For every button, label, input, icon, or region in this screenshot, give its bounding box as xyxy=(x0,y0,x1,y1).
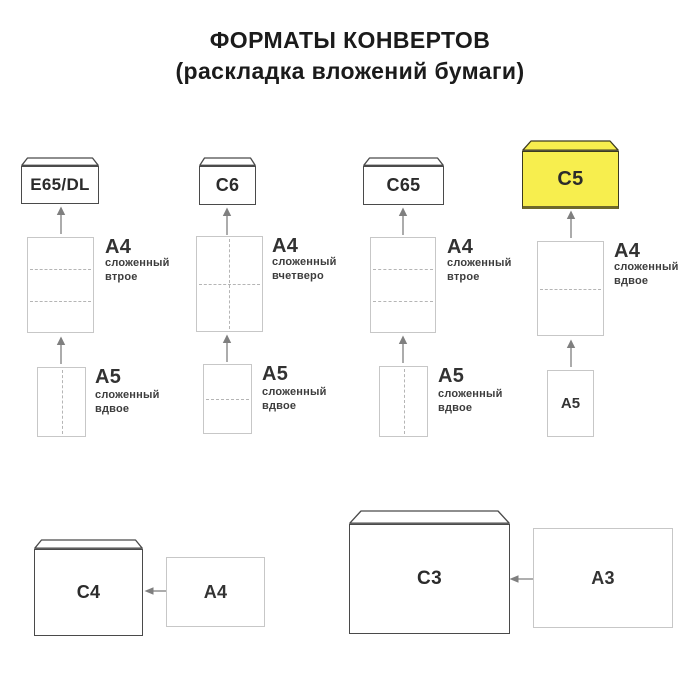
arrow-left-icon xyxy=(144,585,167,597)
paper-size-label: A5 xyxy=(561,395,580,412)
arrow-up-icon xyxy=(221,334,233,362)
envelope-label: C5 xyxy=(557,168,583,191)
fold-description: сложенный вдвое xyxy=(262,386,327,413)
envelope-c3: C3 xyxy=(349,510,510,634)
fold-line xyxy=(30,269,91,270)
fold-description: сложенный вчетверо xyxy=(272,256,337,283)
paper-size-label: A4 xyxy=(272,235,298,258)
arrow-up-icon xyxy=(397,335,409,363)
paper-a3-unfolded: A3 xyxy=(533,528,673,628)
envelope-label: E65/DL xyxy=(30,175,89,195)
paper-size-label: A4 xyxy=(447,236,473,259)
paper-a4-folded-in-four xyxy=(196,236,263,332)
envelope-body: C3 xyxy=(349,524,510,634)
paper-size-label: A4 xyxy=(105,236,131,259)
paper-a5-folded-in-two xyxy=(379,366,428,437)
envelope-body: C4 xyxy=(34,549,143,636)
envelope-flap-icon xyxy=(199,157,256,166)
envelope-label: C65 xyxy=(387,175,421,196)
envelope-flap-icon xyxy=(349,510,510,524)
arrow-left-icon xyxy=(509,573,534,585)
fold-description: сложенный вдвое xyxy=(438,388,503,415)
fold-line xyxy=(540,289,601,290)
page-title-line2: (раскладка вложений бумаги) xyxy=(0,56,700,87)
arrow-up-icon xyxy=(565,339,577,367)
envelope-label: C4 xyxy=(77,582,101,603)
envelope-label: C3 xyxy=(417,568,442,590)
envelope-formats-diagram: ФОРМАТЫ КОНВЕРТОВ (раскладка вложений бу… xyxy=(0,0,700,700)
paper-size-label: A3 xyxy=(591,568,615,589)
fold-description: сложенный вдвое xyxy=(95,389,160,416)
page-title: ФОРМАТЫ КОНВЕРТОВ (раскладка вложений бу… xyxy=(0,25,700,87)
arrow-up-icon xyxy=(55,206,67,234)
arrow-up-icon xyxy=(565,210,577,238)
envelope-flap-icon xyxy=(522,140,619,151)
page-title-line1: ФОРМАТЫ КОНВЕРТОВ xyxy=(0,25,700,56)
envelope-body: C65 xyxy=(363,166,444,205)
arrow-up-icon xyxy=(55,336,67,364)
paper-a4-folded-in-three xyxy=(370,237,436,333)
envelope-e65-dl: E65/DL xyxy=(21,157,99,204)
fold-line xyxy=(30,301,91,302)
fold-line xyxy=(373,301,433,302)
arrow-up-icon xyxy=(397,207,409,235)
paper-size-label: A4 xyxy=(204,582,228,603)
envelope-c6: C6 xyxy=(199,157,256,205)
paper-a5-folded-in-two xyxy=(203,364,252,434)
envelope-c4: C4 xyxy=(34,539,143,636)
arrow-up-icon xyxy=(221,207,233,235)
paper-size-label: A5 xyxy=(438,365,464,388)
envelope-c5-highlighted: C5 xyxy=(522,140,619,209)
fold-description: сложенный втрое xyxy=(447,257,512,284)
paper-size-label: A5 xyxy=(95,366,121,389)
envelope-body: C5 xyxy=(522,151,619,209)
fold-description: сложенный вдвое xyxy=(614,261,679,288)
envelope-flap-icon xyxy=(21,157,99,166)
fold-line xyxy=(206,399,249,400)
fold-line xyxy=(229,239,230,329)
paper-a4-folded-in-three xyxy=(27,237,94,333)
paper-size-label: A5 xyxy=(262,363,288,386)
paper-a4-folded-in-two xyxy=(537,241,604,336)
envelope-flap-icon xyxy=(363,157,444,166)
fold-description: сложенный втрое xyxy=(105,257,170,284)
fold-line xyxy=(404,369,405,434)
fold-line xyxy=(62,370,63,434)
envelope-body: E65/DL xyxy=(21,166,99,204)
envelope-c65: C65 xyxy=(363,157,444,205)
paper-size-label: A4 xyxy=(614,240,640,263)
envelope-label: C6 xyxy=(216,175,240,196)
paper-a5-unfolded: A5 xyxy=(547,370,594,437)
envelope-flap-icon xyxy=(34,539,143,549)
paper-a5-folded-in-two xyxy=(37,367,86,437)
paper-a4-unfolded: A4 xyxy=(166,557,265,627)
fold-line xyxy=(373,269,433,270)
envelope-body: C6 xyxy=(199,166,256,205)
